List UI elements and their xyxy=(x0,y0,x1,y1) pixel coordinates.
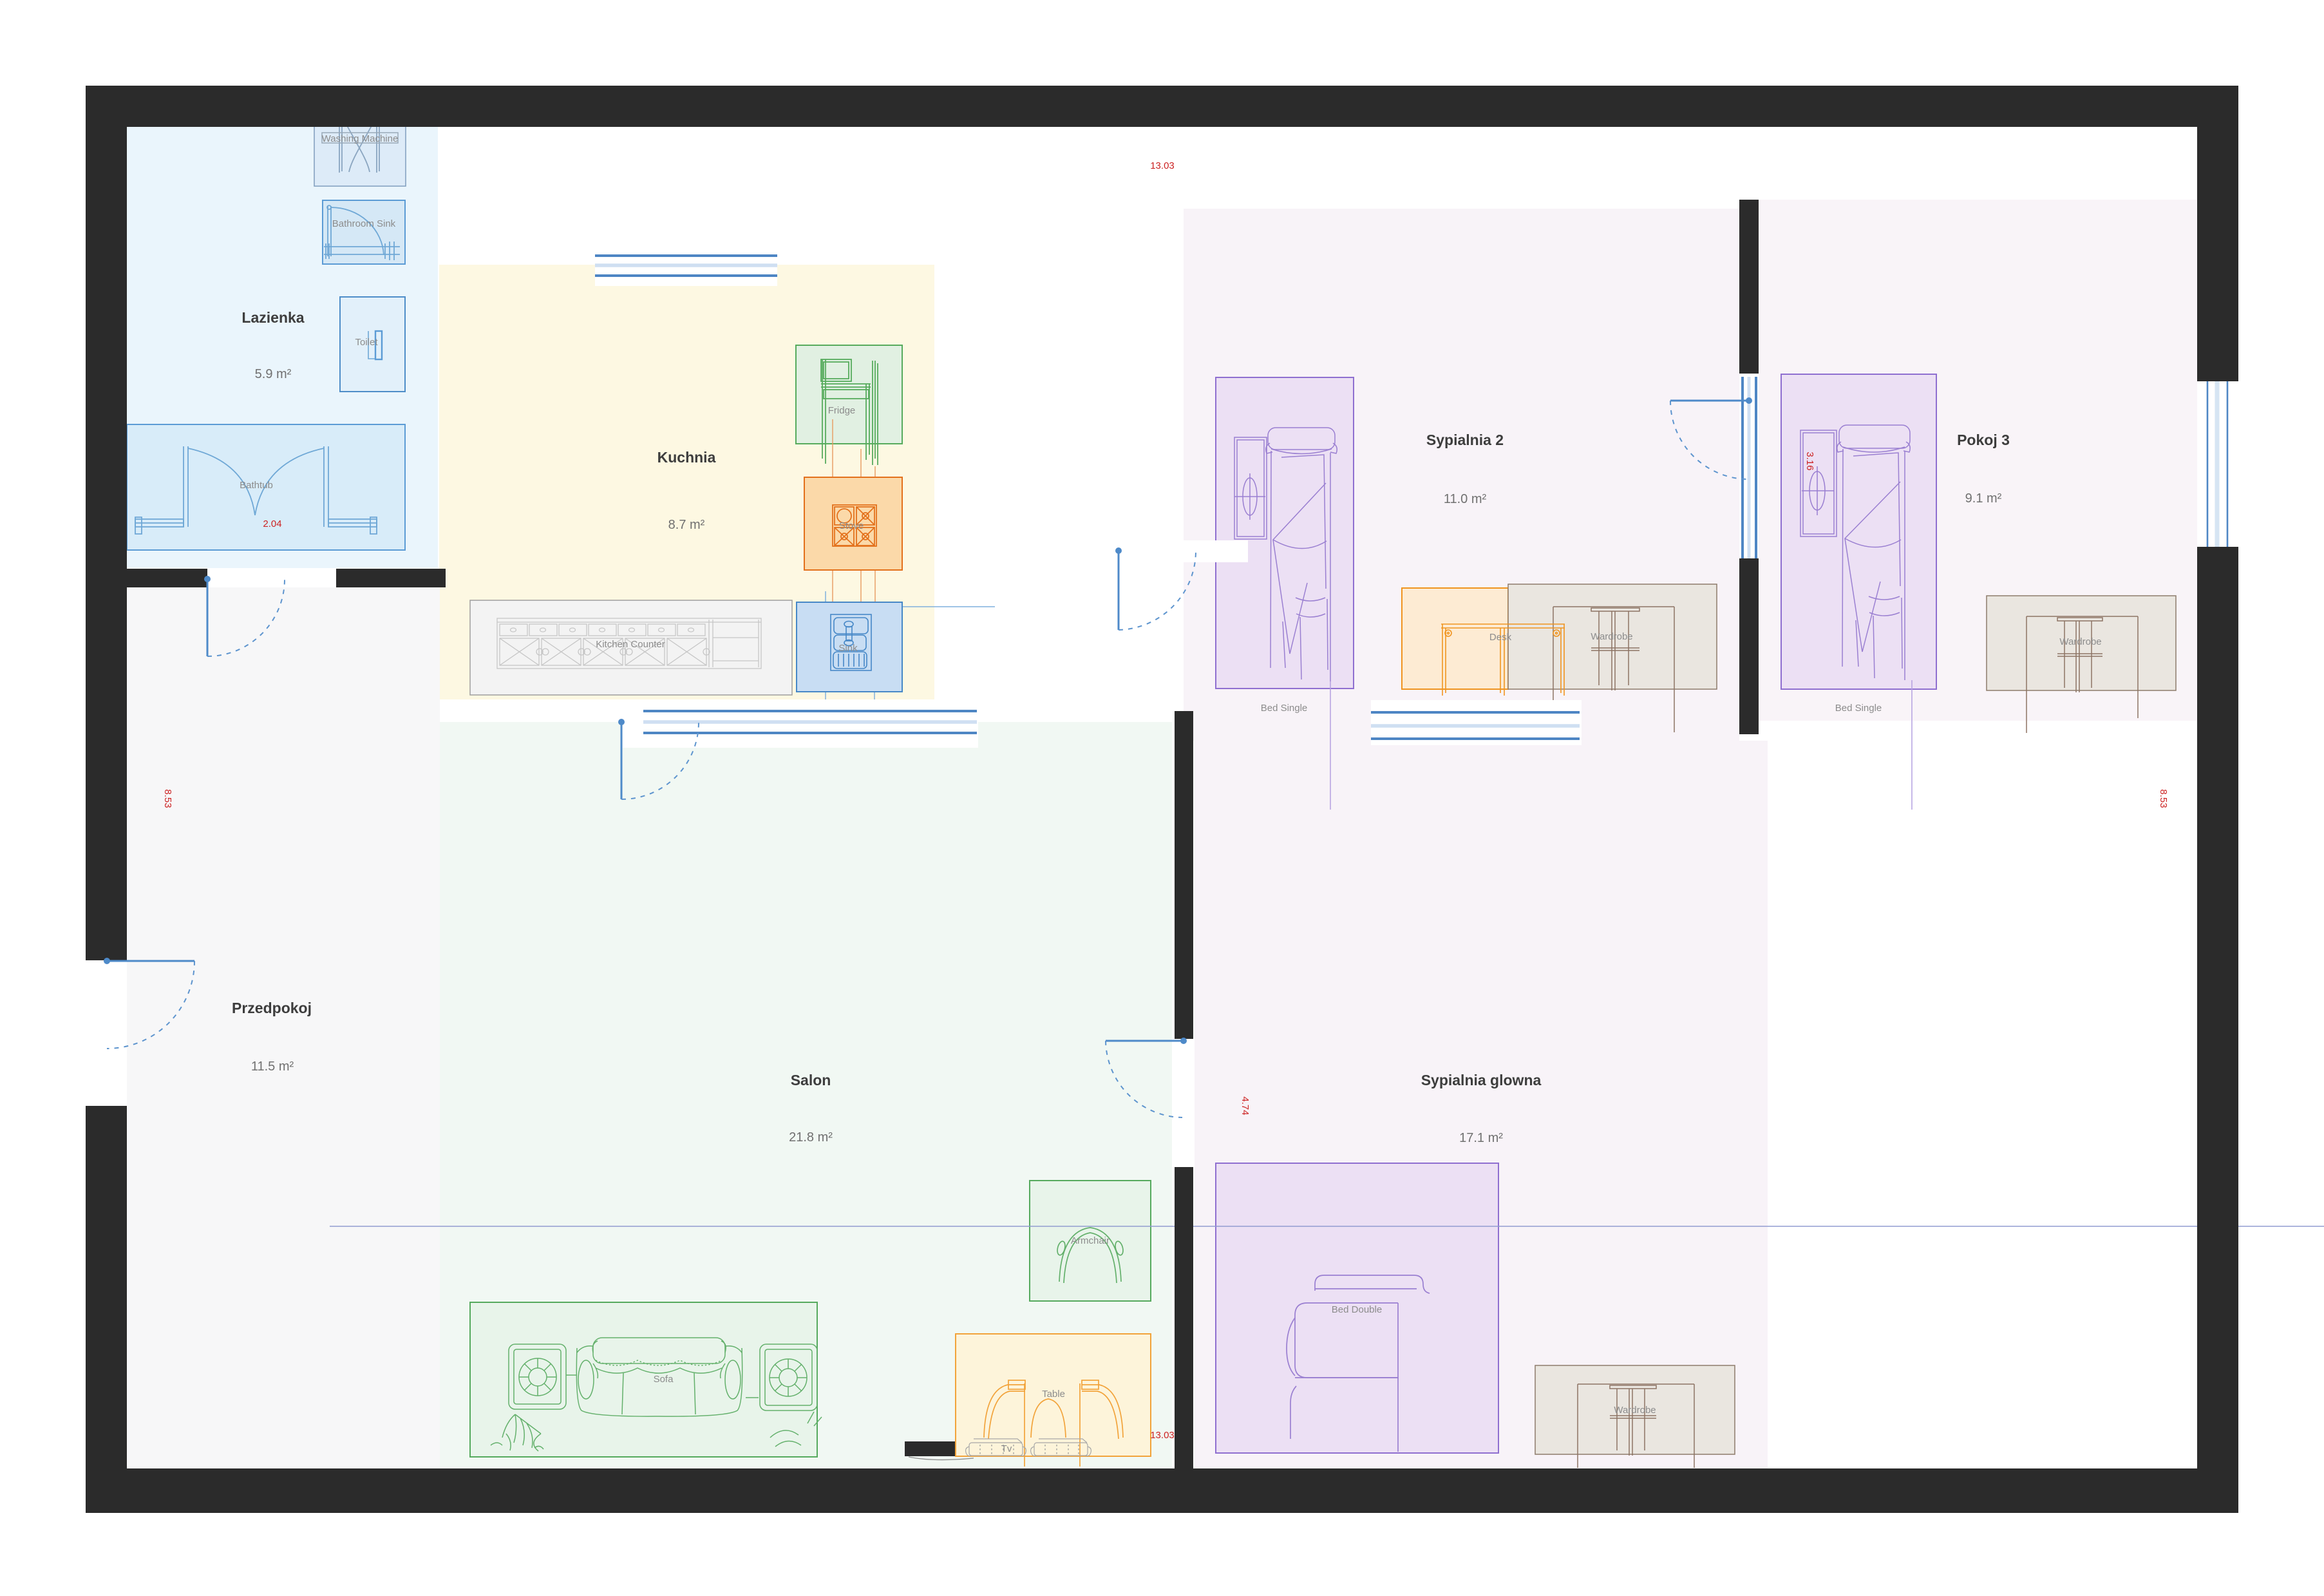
svg-text:Table: Table xyxy=(1042,1389,1065,1400)
svg-text:Wardrobe: Wardrobe xyxy=(1614,1405,1656,1416)
svg-text:Kitchen Counter: Kitchen Counter xyxy=(596,639,665,650)
svg-text:Wardrobe: Wardrobe xyxy=(2059,636,2101,647)
svg-text:Kuchnia: Kuchnia xyxy=(657,449,716,466)
svg-text:Wardrobe: Wardrobe xyxy=(1591,631,1632,642)
svg-text:Sofa: Sofa xyxy=(654,1374,674,1385)
svg-text:13.03: 13.03 xyxy=(1150,1430,1175,1441)
svg-text:Pokoj 3: Pokoj 3 xyxy=(1957,432,2010,448)
svg-text:Stove: Stove xyxy=(839,520,864,531)
svg-text:2.04: 2.04 xyxy=(263,518,281,529)
svg-text:Lazienka: Lazienka xyxy=(241,309,304,326)
svg-text:Armchair: Armchair xyxy=(1071,1235,1110,1246)
svg-text:Salon: Salon xyxy=(791,1072,831,1088)
svg-text:8.53: 8.53 xyxy=(162,789,173,808)
svg-text:Sink: Sink xyxy=(838,643,858,654)
svg-text:Desk: Desk xyxy=(1489,632,1512,643)
svg-text:21.8 m²: 21.8 m² xyxy=(789,1130,833,1145)
svg-text:Bathtub: Bathtub xyxy=(240,480,273,491)
svg-text:Sypialnia 2: Sypialnia 2 xyxy=(1426,432,1504,448)
svg-text:Washing Machine: Washing Machine xyxy=(322,133,399,144)
svg-text:Przedpokoj: Przedpokoj xyxy=(232,1000,312,1016)
svg-text:11.0 m²: 11.0 m² xyxy=(1444,492,1487,506)
svg-text:13.03: 13.03 xyxy=(1150,160,1175,171)
svg-text:Fridge: Fridge xyxy=(828,405,856,416)
svg-text:Bed Double: Bed Double xyxy=(1332,1304,1382,1315)
svg-text:Tv: Tv xyxy=(1001,1443,1012,1454)
svg-text:4.74: 4.74 xyxy=(1240,1096,1251,1115)
svg-text:9.1 m²: 9.1 m² xyxy=(1965,491,2002,506)
svg-text:3.16: 3.16 xyxy=(1804,451,1815,470)
svg-text:11.5 m²: 11.5 m² xyxy=(251,1059,294,1074)
svg-text:Bed Single: Bed Single xyxy=(1835,703,1882,714)
svg-text:17.1 m²: 17.1 m² xyxy=(1459,1131,1503,1145)
svg-text:Toilet: Toilet xyxy=(355,337,378,348)
svg-text:Bed Single: Bed Single xyxy=(1261,703,1308,714)
svg-text:Bathroom Sink: Bathroom Sink xyxy=(332,218,396,229)
svg-text:Sypialnia glowna: Sypialnia glowna xyxy=(1421,1072,1542,1088)
svg-text:8.7 m²: 8.7 m² xyxy=(668,518,705,532)
svg-text:5.9 m²: 5.9 m² xyxy=(255,367,292,381)
svg-text:8.53: 8.53 xyxy=(2158,789,2169,808)
